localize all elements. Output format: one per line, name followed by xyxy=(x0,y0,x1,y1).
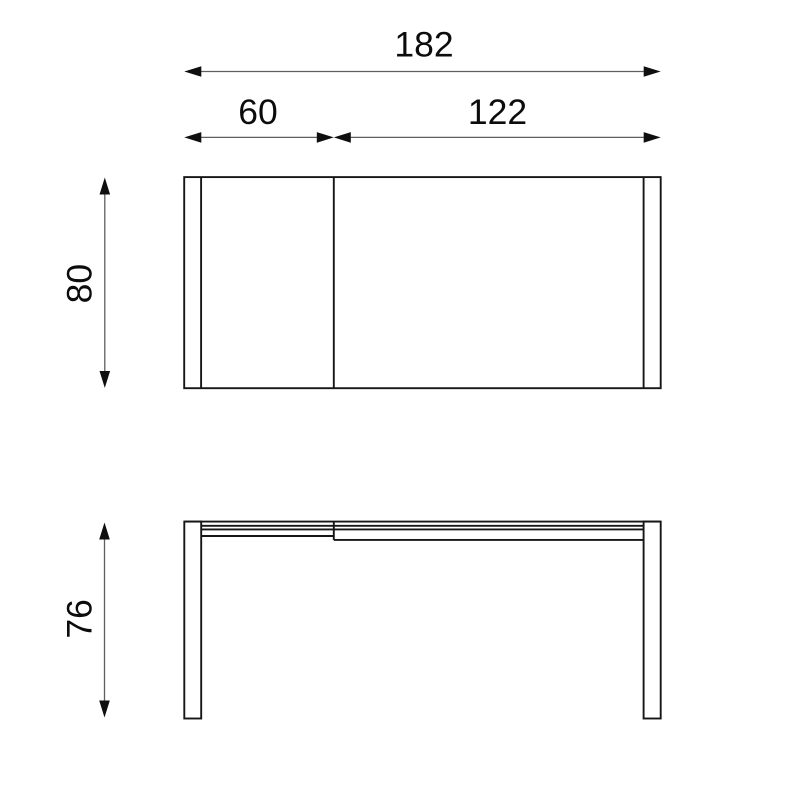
svg-text:80: 80 xyxy=(59,264,99,304)
svg-text:182: 182 xyxy=(394,24,453,64)
svg-text:76: 76 xyxy=(59,599,99,639)
svg-text:60: 60 xyxy=(238,92,278,132)
svg-text:122: 122 xyxy=(468,92,527,132)
